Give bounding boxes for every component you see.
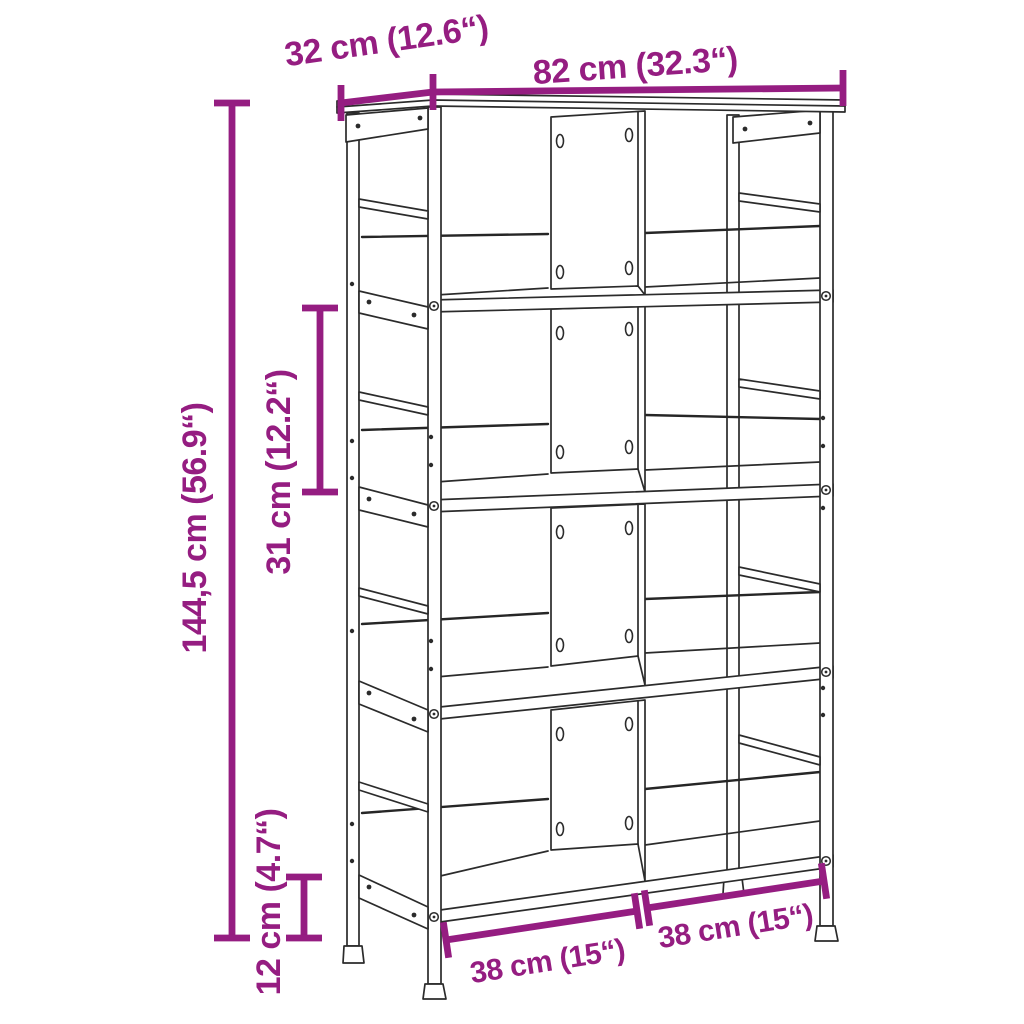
center-divider-tier3 bbox=[551, 504, 645, 685]
front-left-post bbox=[423, 107, 446, 999]
compartment-right-dimension-label: 38 cm (15“) bbox=[656, 898, 815, 955]
shelf-spacing-dimension: 31 cm (12.2“) bbox=[260, 308, 338, 575]
bottom-clearance-dimension: 12 cm (4.7“) bbox=[250, 809, 322, 996]
center-divider-tier4 bbox=[551, 700, 645, 881]
right-side-frame bbox=[733, 110, 820, 765]
back-right-post bbox=[723, 115, 744, 894]
height-dimension-label: 144,5 cm (56.9“) bbox=[176, 403, 214, 654]
depth-dimension-label: 32 cm (12.6“) bbox=[282, 8, 490, 74]
width-dimension-label: 82 cm (32.3“) bbox=[532, 40, 739, 92]
bookshelf-drawing bbox=[337, 94, 845, 999]
center-divider-tier1 bbox=[551, 111, 645, 295]
product-dimension-diagram: 32 cm (12.6“) 82 cm (32.3“) 144,5 cm (56… bbox=[0, 0, 1024, 1024]
compartment-left-dimension-label: 38 cm (15“) bbox=[468, 933, 627, 990]
front-right-post bbox=[815, 109, 838, 941]
dimension-diagram-page: 32 cm (12.6“) 82 cm (32.3“) 144,5 cm (56… bbox=[0, 0, 1024, 1024]
bottom-clearance-dimension-label: 12 cm (4.7“) bbox=[250, 809, 288, 996]
center-divider-tier2 bbox=[551, 306, 645, 492]
back-left-post bbox=[343, 113, 364, 963]
height-dimension: 144,5 cm (56.9“) bbox=[176, 103, 250, 938]
shelf-spacing-dimension-label: 31 cm (12.2“) bbox=[260, 369, 298, 574]
